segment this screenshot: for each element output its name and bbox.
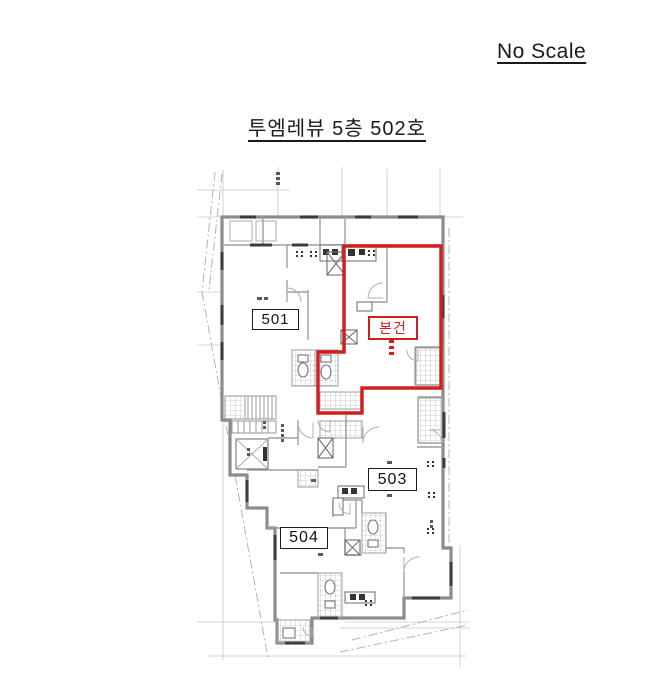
floorplan-drawing [0,0,663,700]
elevator [236,439,268,469]
unit-label-501: 501 [252,309,299,330]
page-title: 투엠레뷰 5층 502호 [227,112,447,141]
floorplan-page: No Scale 투엠레뷰 5층 502호 501 본건 503 504 [0,0,663,700]
subject-label-text: 본건 [379,318,407,338]
unit-label-503: 503 [368,468,417,491]
unit-label-504: 504 [280,527,328,549]
unit-504-text: 504 [289,529,319,547]
unit-501-text: 501 [261,311,289,328]
unit-503-text: 503 [378,471,408,489]
no-scale-note: No Scale [497,40,597,64]
subject-unit-label: 본건 [368,316,418,340]
